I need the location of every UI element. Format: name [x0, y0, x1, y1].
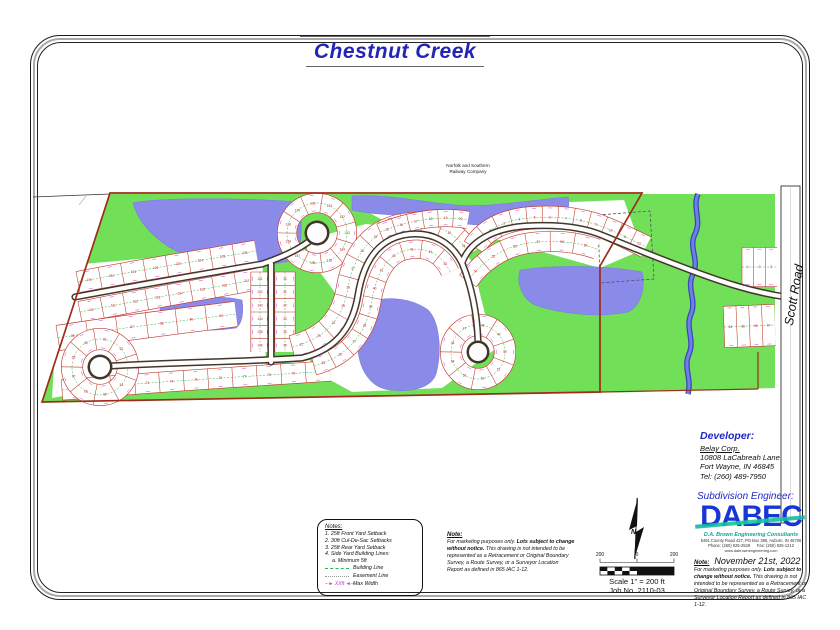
building-line-swatch	[325, 568, 349, 569]
note-heading: Note:	[447, 532, 575, 538]
note-heading: Note:	[694, 560, 709, 566]
date-note: Note: November 21st, 2022 For marketing …	[694, 556, 808, 609]
developer-address2: Fort Wayne, IN 46845	[700, 462, 806, 471]
legend-label: Max Width	[353, 581, 378, 589]
note-text: For marketing purposes only.	[694, 567, 764, 573]
plat-date: November 21st, 2022	[714, 556, 800, 566]
engineer-logo-block: DABEC D.A. Brown Engineering Consultants…	[694, 503, 808, 553]
title-block: Chestnut Creek	[300, 36, 490, 67]
easement-line-swatch	[325, 576, 349, 577]
note-item: 1. 25ft Front Yard Setback	[325, 531, 416, 538]
developer-block: Developer: Belay Corp. 10808 LaCabreah L…	[700, 430, 806, 481]
sheet-border-inner	[37, 42, 803, 593]
notes-heading: Notes:	[325, 524, 416, 530]
legend-easement-line: Easement Line	[325, 573, 416, 581]
legend-building-line: Building Line	[325, 565, 416, 573]
note-item: a. Minimum 5ft	[325, 558, 416, 565]
developer-address1: 10808 LaCabreah Lane	[700, 453, 806, 462]
railway-label-line2: Railway Company	[425, 169, 511, 175]
notes-box: Notes: 1. 25ft Front Yard Setback 2. 30f…	[317, 519, 423, 596]
legend-label: Easement Line	[353, 573, 388, 581]
developer-name: Belay Corp.	[700, 444, 806, 453]
note-item: 2. 30ft Cul-De-Sac Setbacks	[325, 538, 416, 545]
dabec-logo: DABEC	[694, 503, 808, 532]
note-item: 4. Side Yard Building Lines:	[325, 551, 416, 558]
developer-phone: Tel: (260) 489-7950	[700, 472, 806, 481]
scale-caption: Scale 1" = 200 ft	[577, 577, 697, 586]
note-body: For marketing purposes only. Lots subjec…	[694, 567, 808, 609]
page-title: Chestnut Creek	[306, 40, 484, 67]
note-body: For marketing purposes only. Lots subjec…	[447, 539, 575, 574]
legend-label: Building Line	[353, 565, 383, 573]
dabec-website: www.dabrownengineering.com	[694, 548, 808, 553]
marketing-note: Note: For marketing purposes only. Lots …	[447, 532, 575, 574]
max-width-swatch: ─► XXft ◄─	[325, 581, 349, 589]
note-text: For marketing purposes only.	[447, 539, 517, 545]
developer-heading: Developer:	[700, 430, 806, 442]
note-item: 3. 25ft Rear Yard Setback	[325, 545, 416, 552]
railway-label: Norfolk and Southern Railway Company	[425, 163, 511, 175]
legend-max-width: ─► XXft ◄─ Max Width	[325, 581, 416, 589]
job-number: Job No. 2110-03	[577, 586, 697, 595]
